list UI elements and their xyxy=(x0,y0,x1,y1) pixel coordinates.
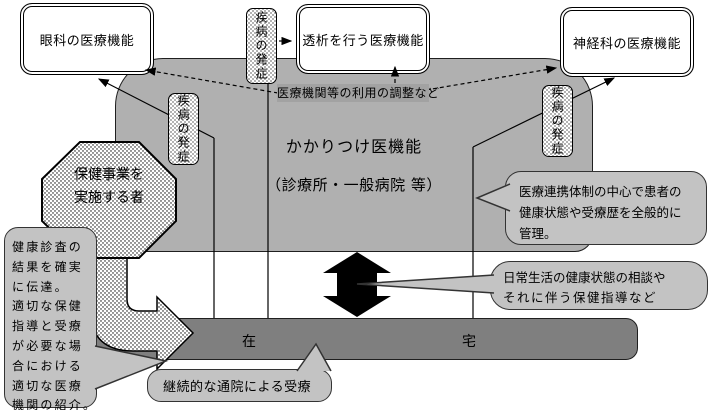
callout-daily-line: それに伴う保健指導など xyxy=(503,288,707,308)
callout-referral-line: 合における xyxy=(12,357,96,377)
callout-management-line: 医療連携体制の中心で患者の xyxy=(519,181,706,202)
label-disease-onset-top: 疾病の発症 xyxy=(246,8,277,84)
health-program-label: 保健事業を 実施する者 xyxy=(59,164,159,210)
box-dialysis: 透析を行う医療機能 xyxy=(296,4,430,74)
callout-referral-line: が必要な場 xyxy=(12,337,96,357)
box-neurology: 神経科の医療機能 xyxy=(560,7,694,77)
diagram-canvas: かかりつけ医機能 （診療所・一般病院 等） 在 宅 眼科の医療機能 透析を行う医… xyxy=(0,0,711,410)
callout-referral: 健康診査の 結果を確実 に伝達。 適切な保健 指導と受療 が必要な場 合における… xyxy=(4,227,97,408)
callout-referral-line: 指導と受療 xyxy=(12,317,96,337)
health-program-line1: 保健事業を xyxy=(59,164,159,187)
callout-management: 医療連携体制の中心で患者の 健康状態や受療歴を全般的に 管理。 xyxy=(505,171,707,245)
box-ophthalmology-label: 眼科の医療機能 xyxy=(40,30,135,49)
callout-management-line: 管理。 xyxy=(519,223,706,244)
callout-referral-line: 適切な医療 xyxy=(12,377,96,397)
label-disease-onset-right: 疾病の発症 xyxy=(542,85,573,157)
label-disease-onset-left: 疾病の発症 xyxy=(168,93,199,165)
home-bar: 在 宅 xyxy=(55,318,638,360)
box-ophthalmology: 眼科の医療機能 xyxy=(20,3,154,75)
label-coordination: 医療機関等の利用の調整など xyxy=(277,84,429,102)
callout-daily-consult: 日常生活の健康状態の相談や それに伴う保健指導など xyxy=(490,261,708,310)
callout-referral-line: に伝達。 xyxy=(12,278,96,298)
callout-referral-line: 健康診査の xyxy=(12,238,96,258)
callout-outpatient-line: 継続的な通院による受療 xyxy=(163,376,331,395)
callout-outpatient: 継続的な通院による受療 xyxy=(147,369,332,402)
callout-referral-line: 結果を確実 xyxy=(12,258,96,278)
callout-referral-line: 適切な保健 xyxy=(12,297,96,317)
box-dialysis-label: 透析を行う医療機能 xyxy=(302,30,424,49)
health-program-line2: 実施する者 xyxy=(59,187,159,210)
callout-management-line: 健康状態や受療歴を全般的に xyxy=(519,202,706,223)
callout-referral-line: 機関の紹介。 xyxy=(12,396,96,410)
pointer-daily-consult xyxy=(357,275,494,293)
callout-daily-line: 日常生活の健康状態の相談や xyxy=(503,268,707,288)
box-neurology-label: 神経科の医療機能 xyxy=(573,33,681,52)
double-arrow xyxy=(323,252,391,317)
home-bar-char-left: 在 xyxy=(242,331,256,351)
home-bar-char-right: 宅 xyxy=(462,331,476,351)
